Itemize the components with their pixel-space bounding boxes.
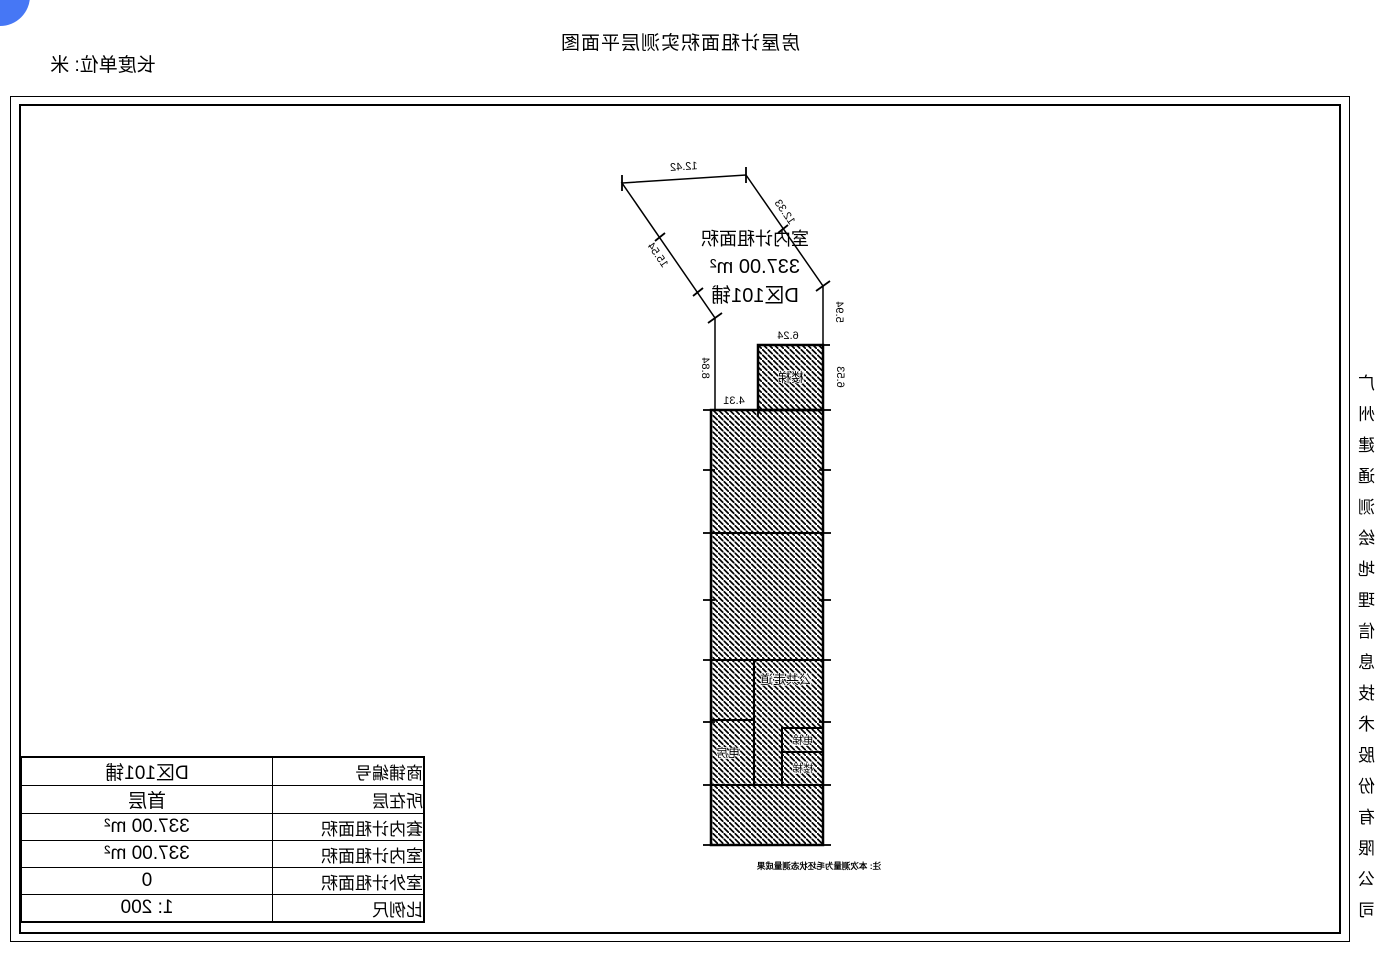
floor-plan: 室内计租面积 337.00 m² D区101铺 楼梯 公共走道 电梯 楼梯 电房… [555, 140, 905, 885]
area-label-line2: 337.00 m² [710, 256, 800, 278]
stairs-top-label: 楼梯 [778, 370, 804, 385]
row-value: 337.00 m² [21, 814, 273, 841]
dim-stair-right: 6.53 [834, 366, 846, 387]
dim-left-vertical: 8.84 [699, 357, 711, 378]
row-value: 1: 200 [21, 895, 273, 923]
row-value: 首层 [21, 786, 273, 814]
plan-note: 注: 本次测量为毛坯状态测量成果 [756, 861, 881, 871]
row-label: 商铺编号 [273, 757, 425, 786]
dim-right-upper: 5.94 [833, 301, 845, 322]
electrical-room-label: 电房 [716, 745, 740, 760]
row-label: 套内计租面积 [273, 814, 425, 841]
table-row: 所在层 首层 [21, 786, 424, 814]
corridor-label: 公共走道 [760, 672, 812, 687]
area-label-line1: 室内计租面积 [701, 229, 809, 249]
table-row: 室内计租面积 337.00 m² [21, 841, 424, 868]
dim-stair-top: 6.24 [777, 330, 798, 342]
unit-label: 长度单位: 米 [28, 50, 178, 77]
table-row: 套内计租面积 337.00 m² [21, 814, 424, 841]
row-value: 0 [21, 868, 273, 895]
area-label-line3: D区101铺 [711, 284, 799, 307]
dim-top-edge: 12.42 [670, 160, 698, 174]
dim-stair-bottom: 4.31 [723, 395, 744, 407]
row-label: 所在层 [273, 786, 425, 814]
row-label: 比例尺 [273, 895, 425, 923]
table-row: 室外计租面积 0 [21, 868, 424, 895]
table-row: 商铺编号 D区101铺 [21, 757, 424, 786]
info-table: 商铺编号 D区101铺 所在层 首层 套内计租面积 337.00 m² 室内计租… [20, 756, 425, 923]
company-name-vertical: 广州建通测绘地理信息技术股份有限公司 [1356, 374, 1381, 966]
table-row: 比例尺 1: 200 [21, 895, 424, 923]
stairs-label: 楼梯 [793, 762, 814, 775]
elevator-label: 电梯 [793, 734, 814, 747]
row-value: 337.00 m² [21, 841, 273, 868]
row-value: D区101铺 [21, 757, 273, 786]
row-label: 室外计租面积 [273, 868, 425, 895]
corner-blue-dot [0, 0, 30, 26]
sheet-title: 房屋计租面积实测层平面图 [570, 28, 800, 55]
row-label: 室内计租面积 [273, 841, 425, 868]
hatched-strip [711, 410, 823, 845]
